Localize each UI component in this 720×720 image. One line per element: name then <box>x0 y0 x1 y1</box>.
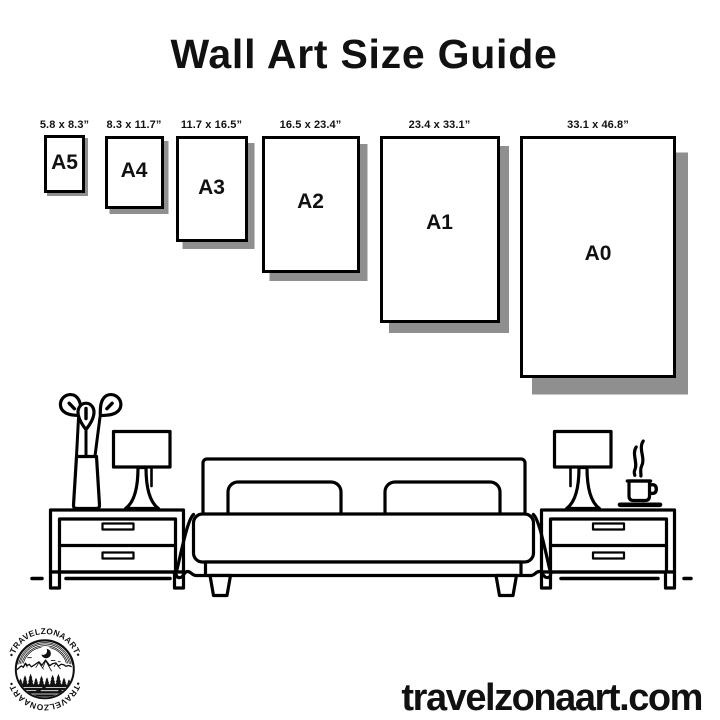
svg-text:travelzonaart.com: travelzonaart.com <box>401 677 702 719</box>
